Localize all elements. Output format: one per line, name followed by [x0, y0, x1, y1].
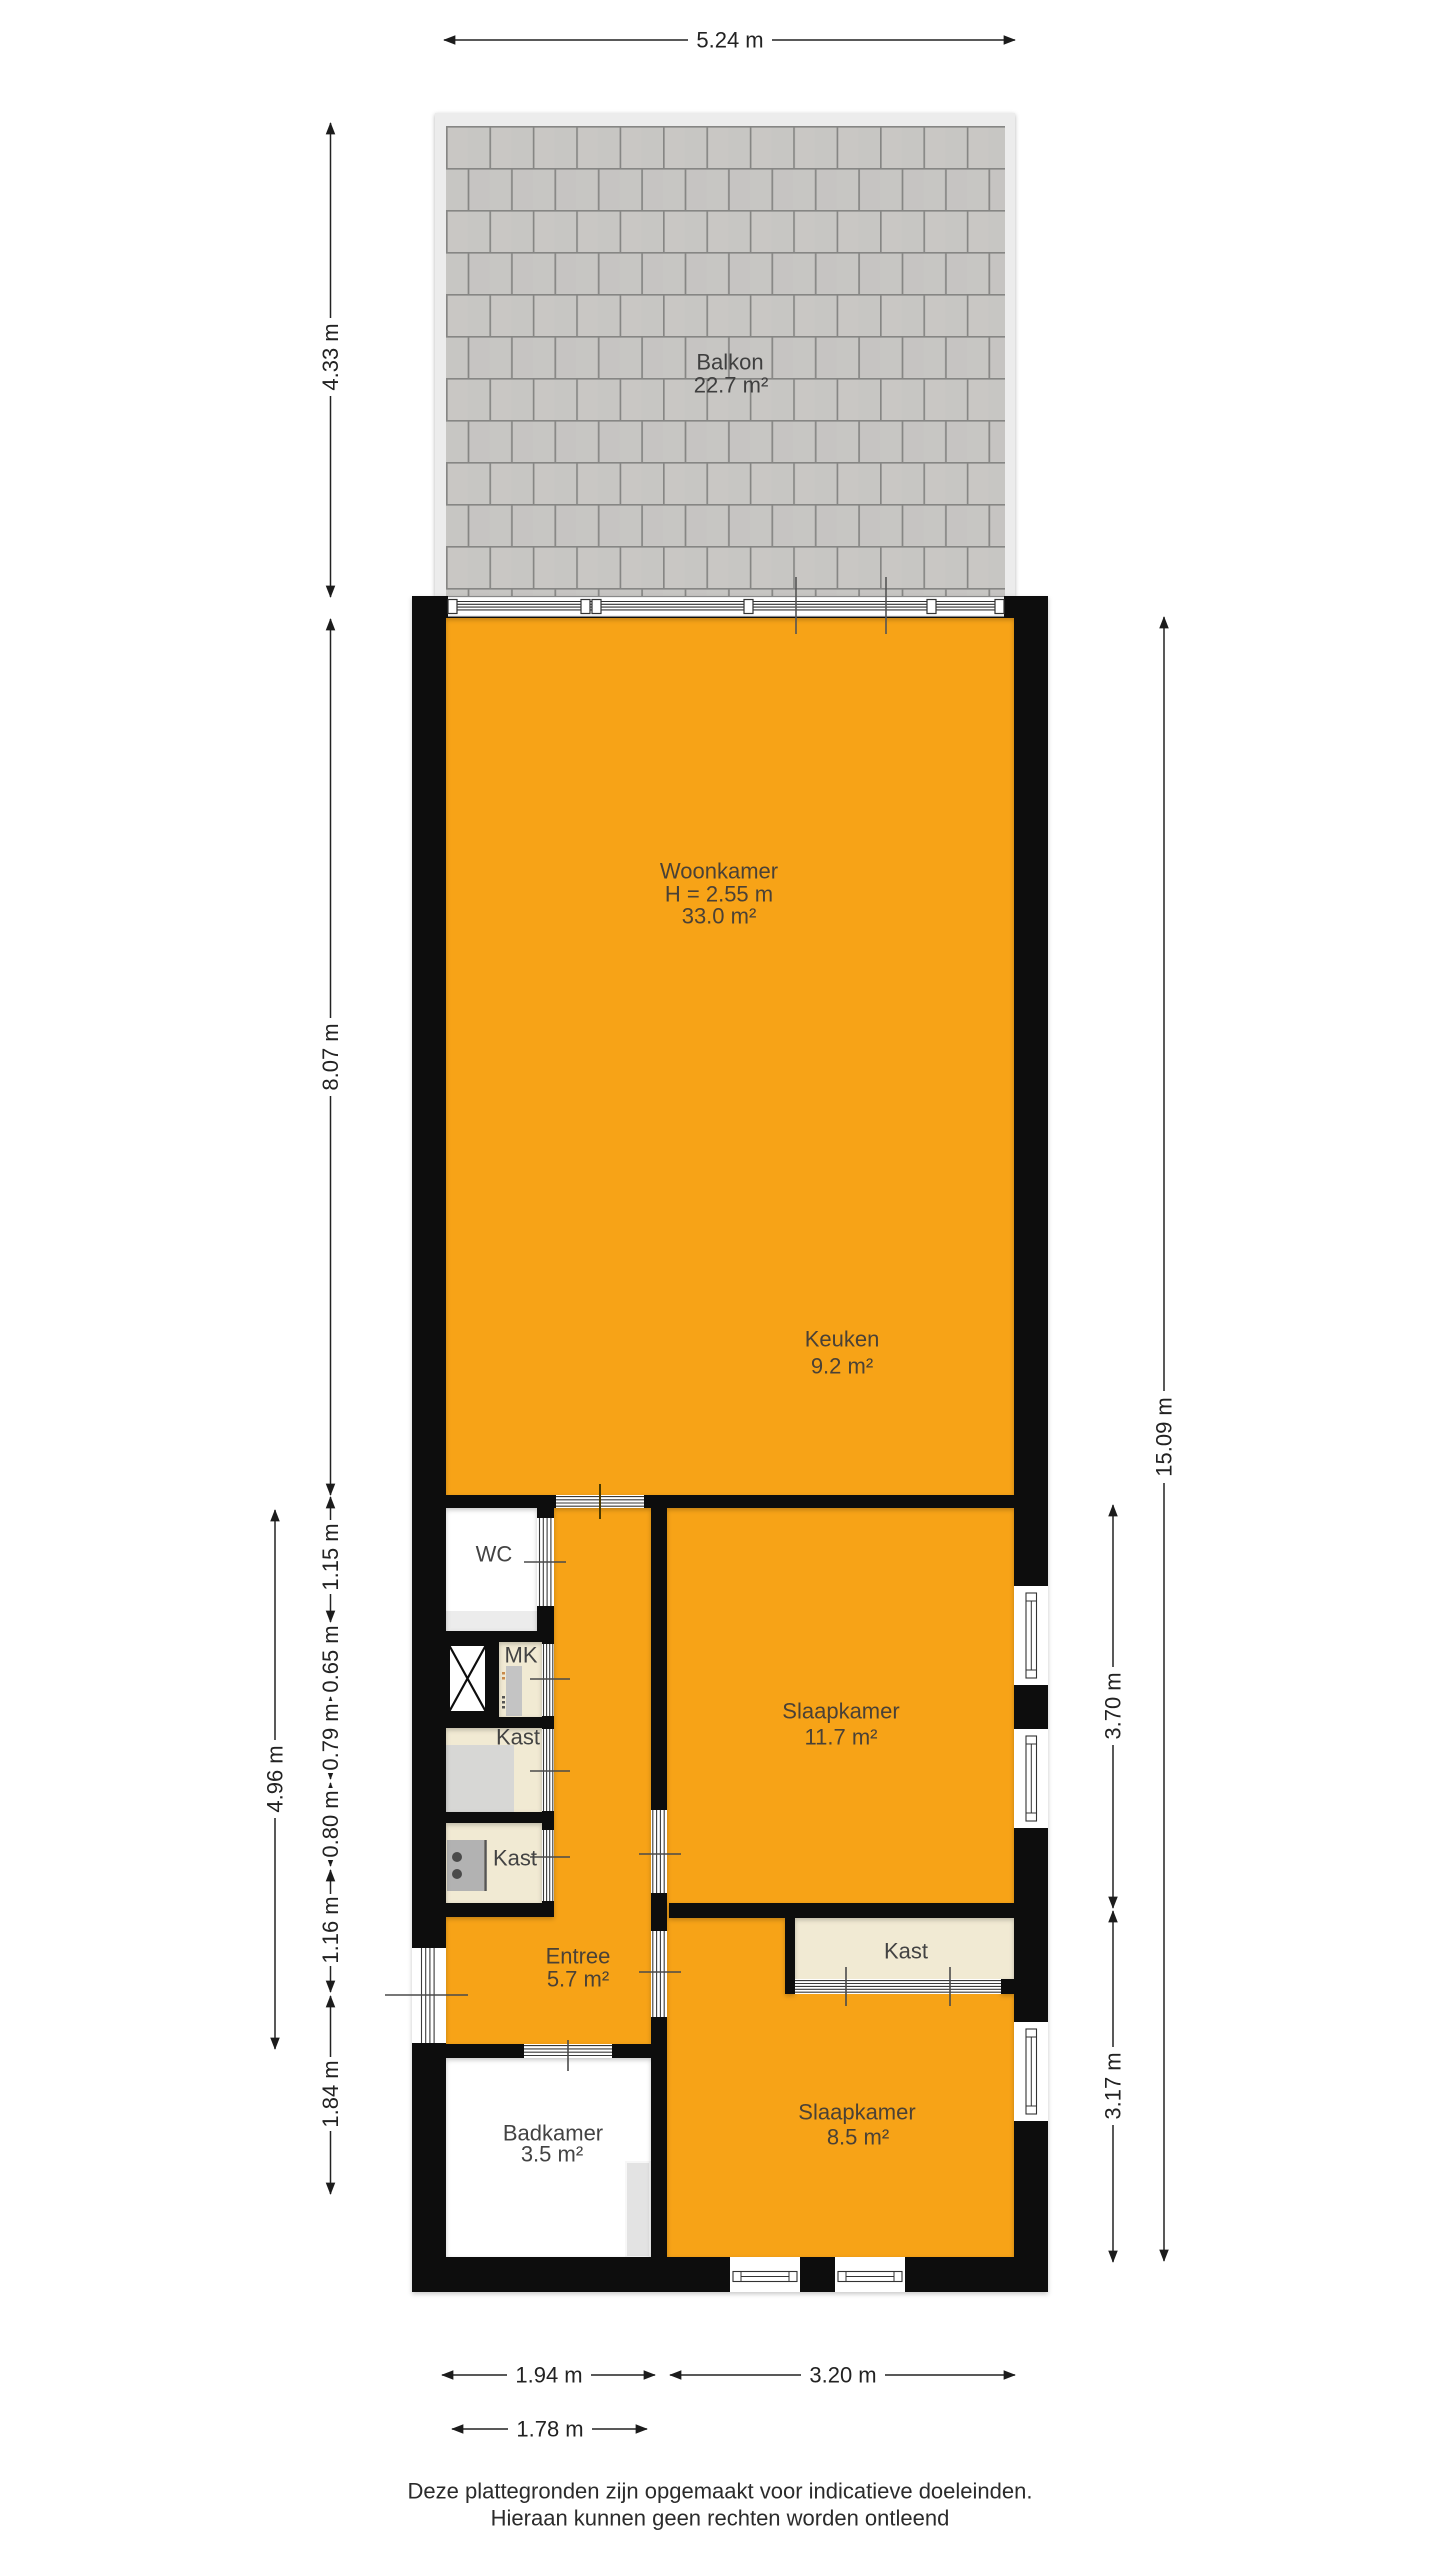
svg-text:4.96 m: 4.96 m: [263, 1745, 288, 1812]
svg-text:3.5 m²: 3.5 m²: [521, 2142, 583, 2167]
svg-text:Kast: Kast: [493, 1846, 537, 1871]
svg-text:0.65 m: 0.65 m: [318, 1625, 343, 1692]
svg-text:Hieraan kunnen geen rechten wo: Hieraan kunnen geen rechten worden ontle…: [491, 2506, 950, 2531]
svg-text:0.79 m: 0.79 m: [318, 1703, 343, 1770]
svg-text:Kast: Kast: [496, 1725, 540, 1750]
svg-text:22.7 m²: 22.7 m²: [694, 373, 769, 398]
svg-text:1.78 m: 1.78 m: [516, 2417, 583, 2442]
svg-text:Kast: Kast: [884, 1939, 928, 1964]
svg-text:Balkon: Balkon: [696, 350, 763, 375]
svg-text:Entree: Entree: [546, 1944, 611, 1969]
svg-text:Deze plattegronden zijn opgema: Deze plattegronden zijn opgemaakt voor i…: [408, 2479, 1033, 2504]
svg-text:11.7 m²: 11.7 m²: [805, 1725, 878, 1750]
svg-text:4.33 m: 4.33 m: [318, 323, 343, 390]
svg-text:3.20 m: 3.20 m: [809, 2363, 876, 2388]
svg-text:3.17 m: 3.17 m: [1101, 2052, 1126, 2119]
svg-text:0.80 m: 0.80 m: [318, 1790, 343, 1857]
svg-text:Keuken: Keuken: [805, 1327, 880, 1352]
svg-text:1.84 m: 1.84 m: [318, 2060, 343, 2127]
svg-text:8.07 m: 8.07 m: [318, 1023, 343, 1090]
svg-text:3.70 m: 3.70 m: [1101, 1672, 1126, 1739]
svg-text:1.15 m: 1.15 m: [318, 1523, 343, 1590]
svg-text:5.7 m²: 5.7 m²: [547, 1967, 609, 1992]
svg-text:MK: MK: [505, 1643, 538, 1668]
svg-text:Woonkamer: Woonkamer: [660, 859, 778, 884]
svg-text:Slaapkamer: Slaapkamer: [782, 1699, 899, 1724]
svg-text:9.2 m²: 9.2 m²: [811, 1354, 873, 1379]
svg-text:15.09 m: 15.09 m: [1152, 1397, 1177, 1477]
svg-text:Slaapkamer: Slaapkamer: [798, 2100, 915, 2125]
svg-text:33.0 m²: 33.0 m²: [682, 904, 757, 929]
svg-text:1.16 m: 1.16 m: [318, 1896, 343, 1963]
svg-text:5.24 m: 5.24 m: [696, 28, 763, 53]
svg-text:WC: WC: [476, 1542, 513, 1567]
svg-text:1.94 m: 1.94 m: [515, 2363, 582, 2388]
svg-text:8.5 m²: 8.5 m²: [827, 2125, 889, 2150]
